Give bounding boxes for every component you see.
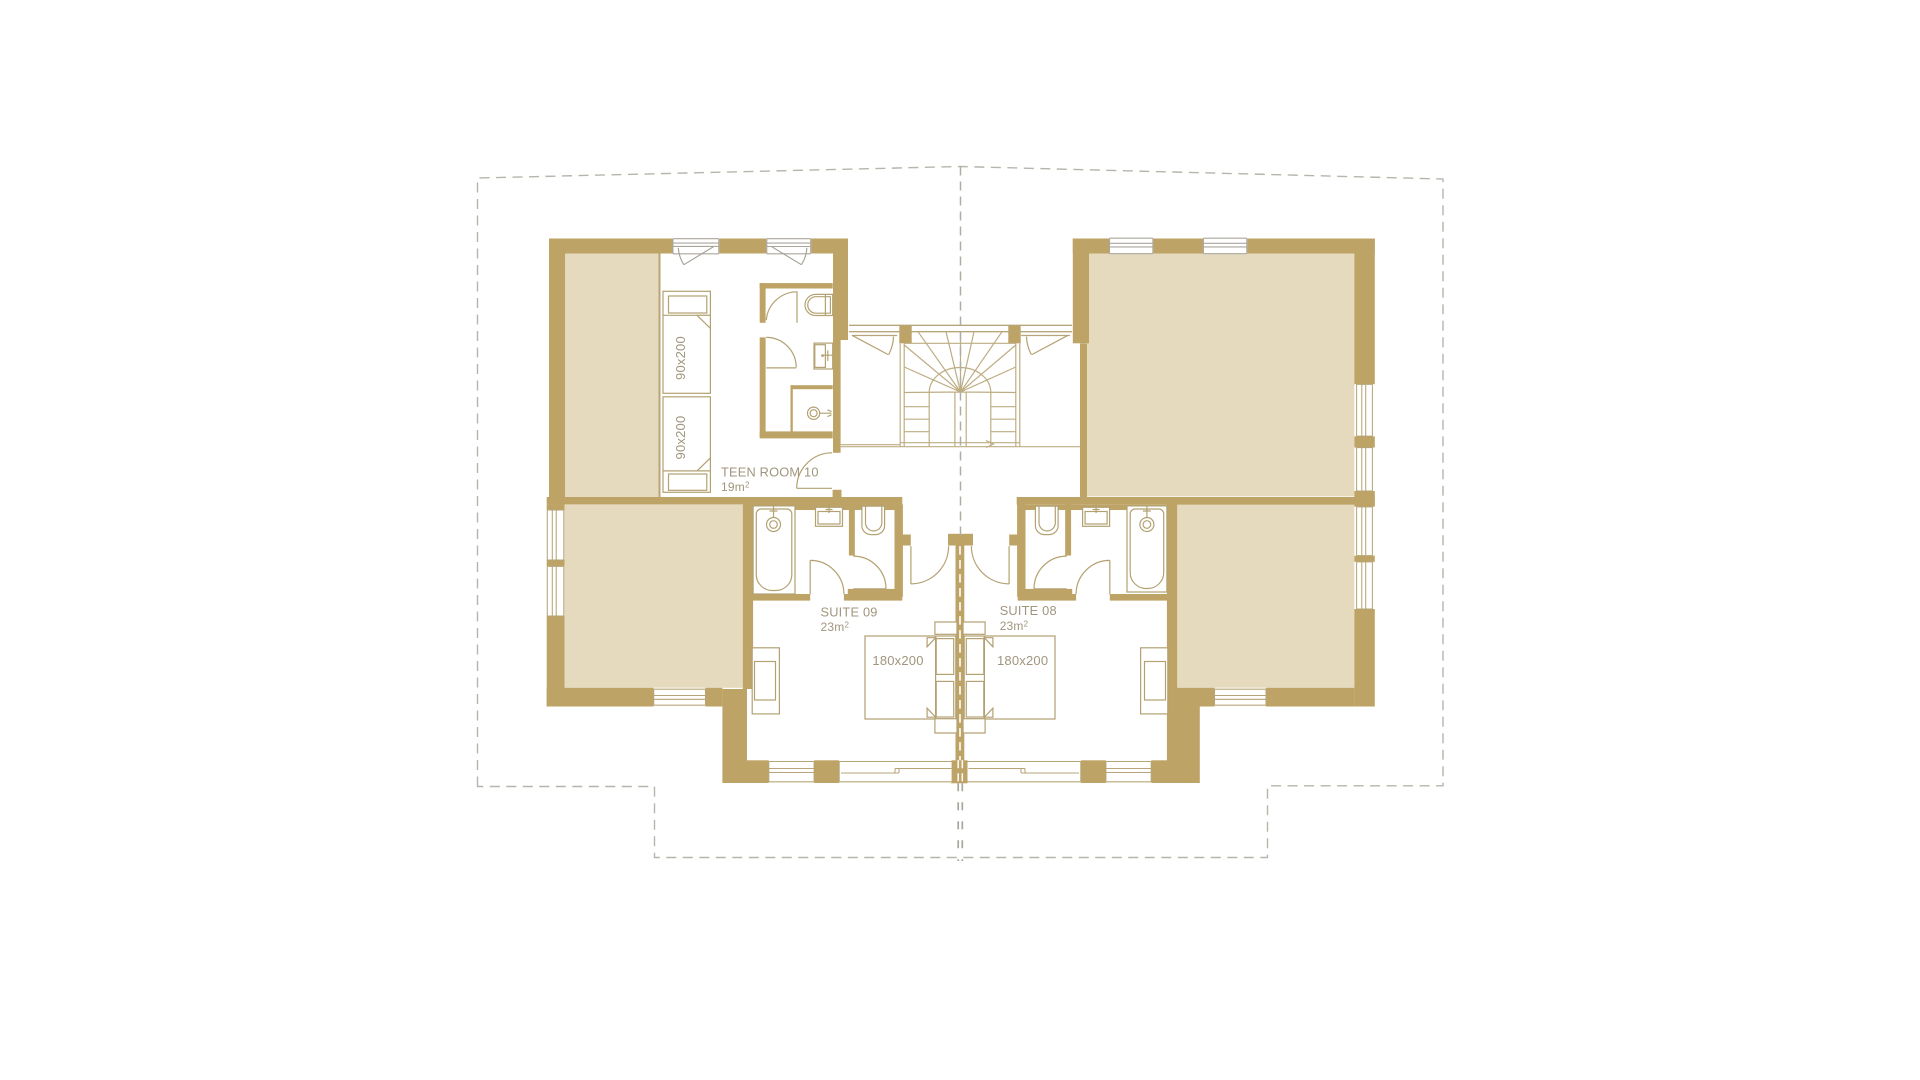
- svg-text:180x200: 180x200: [997, 653, 1048, 668]
- svg-text:SUITE 08: SUITE 08: [1000, 603, 1057, 618]
- svg-text:180x200: 180x200: [872, 653, 923, 668]
- svg-text:TEEN ROOM 10: TEEN ROOM 10: [721, 465, 819, 480]
- svg-text:90x200: 90x200: [673, 416, 688, 460]
- svg-text:SUITE 09: SUITE 09: [821, 605, 878, 620]
- svg-text:90x200: 90x200: [673, 336, 688, 380]
